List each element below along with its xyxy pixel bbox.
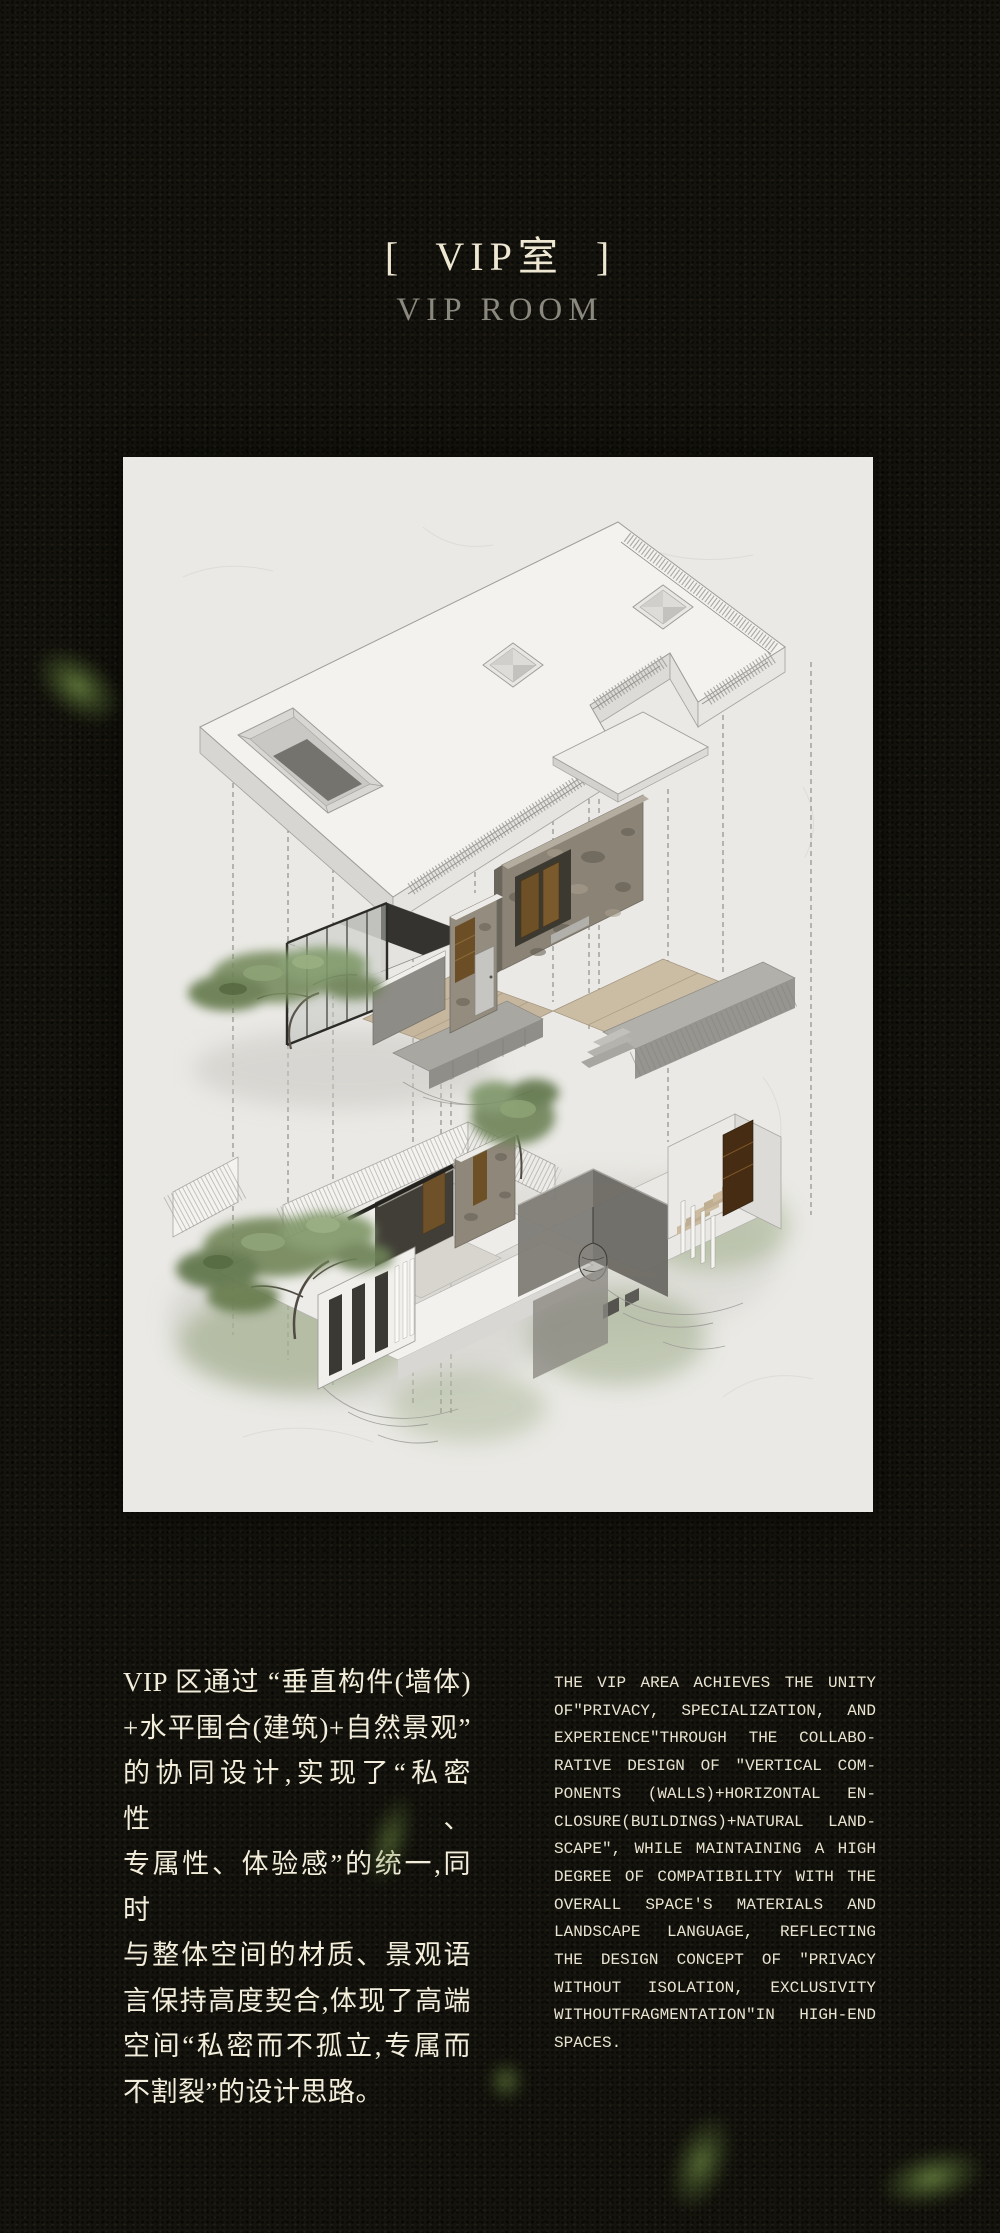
ground-floor (168, 1079, 789, 1443)
page-title: [ VIP室 ] (0, 224, 1000, 282)
english-line: THE DESIGN CONCEPT OF "PRIVACY (554, 1947, 876, 1975)
wood-cabinet-tall (723, 1120, 753, 1216)
exploded-axonometric-drawing (123, 457, 873, 1512)
chinese-paragraph: VIP 区通过 “垂直构件(墙体) +水平围合(建筑)+自然景观” 的协同设计,… (123, 1660, 471, 2115)
english-line: WITHOUTFRAGMENTATION"IN HIGH-END (554, 2002, 876, 2030)
wood-slat-insert (543, 862, 559, 927)
english-line: THE VIP AREA ACHIEVES THE UNITY (554, 1670, 876, 1698)
english-line: LANDSCAPE LANGUAGE, REFLECTING (554, 1919, 876, 1947)
glass-pavilion (188, 894, 795, 1109)
english-line: DEGREE OF COMPATIBILITY WITH THE (554, 1864, 876, 1892)
english-line: SCAPE", WHILE MAINTAINING A HIGH (554, 1836, 876, 1864)
english-line: OVERALL SPACE'S MATERIALS AND (554, 1892, 876, 1920)
wood-slat-insert (473, 1150, 487, 1206)
english-line: SPACES. (554, 2030, 876, 2058)
english-line: EXPERIENCE"THROUGH THE COLLABO- (554, 1725, 876, 1753)
chinese-line: 不割裂”的设计思路。 (123, 2070, 471, 2116)
poster-root: [ VIP室 ] VIP ROOM (0, 0, 1000, 2233)
door (475, 946, 494, 1016)
chinese-line: +水平围合(建筑)+自然景观” (123, 1706, 471, 1752)
leaf-decoration (485, 2058, 527, 2104)
wood-slat-insert (521, 872, 539, 938)
chinese-line: 言保持高度契合,体现了高端 (123, 1979, 471, 2025)
page-subtitle: VIP ROOM (0, 292, 1000, 329)
leaf-decoration (656, 2103, 746, 2222)
leaf-decoration (20, 631, 137, 741)
english-line: RATIVE DESIGN OF "VERTICAL COM- (554, 1753, 876, 1781)
chinese-line: VIP 区通过 “垂直构件(墙体) (123, 1660, 471, 1706)
drawing-panel (123, 457, 873, 1512)
english-line: WITHOUT ISOLATION, EXCLUSIVITY (554, 1975, 876, 2003)
english-paragraph: THE VIP AREA ACHIEVES THE UNITY OF"PRIVA… (554, 1670, 876, 2058)
wood-cabinet (455, 917, 475, 983)
chinese-line: 的协同设计,实现了“私密性、 (123, 1751, 471, 1842)
roof-slab (200, 522, 785, 923)
english-line: OF"PRIVACY, SPECIALIZATION, AND (554, 1698, 876, 1726)
leaf-decoration (873, 2138, 991, 2218)
chinese-line: 空间“私密而不孤立,专属而 (123, 2024, 471, 2070)
chinese-line: 与整体空间的材质、景观语 (123, 1933, 471, 1979)
english-line: CLOSURE(BUILDINGS)+NATURAL LAND- (554, 1809, 876, 1837)
english-line: PONENTS (WALLS)+HORIZONTAL EN- (554, 1781, 876, 1809)
chinese-line: 专属性、体验感”的统一,同时 (123, 1842, 471, 1933)
